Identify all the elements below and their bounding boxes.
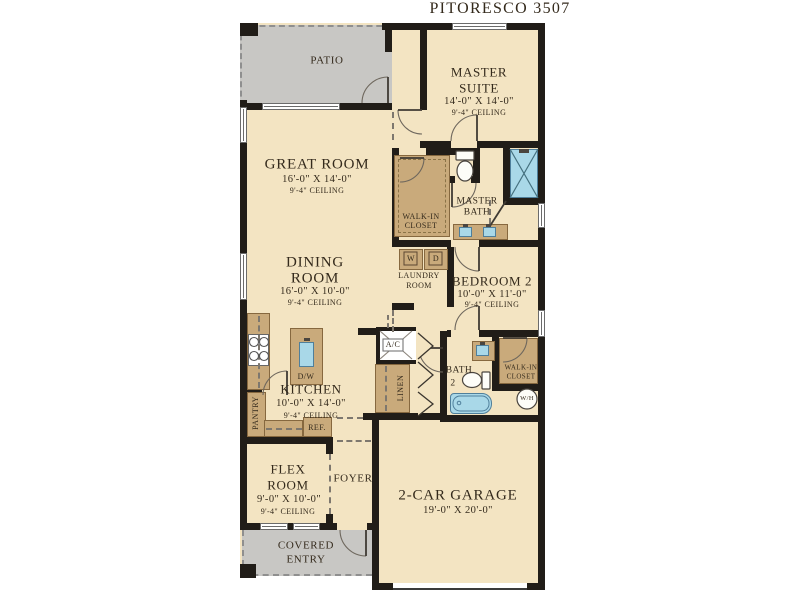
- master-sink-1: [459, 227, 472, 237]
- dashed-opening: [387, 315, 389, 328]
- wall: [420, 23, 427, 110]
- wall: [326, 444, 333, 454]
- dashed-opening: [337, 440, 371, 442]
- label-master-suite-2: SUITE: [459, 82, 499, 95]
- dashed-opening: [266, 428, 302, 430]
- master-sink-2: [483, 227, 496, 237]
- label-garage-dim: 19'-0" X 20'-0": [423, 506, 493, 517]
- bath2-sink: [476, 345, 489, 356]
- label-dining-dim: 16'-0" X 10'-0": [280, 287, 350, 298]
- wall: [450, 176, 455, 183]
- dashed-opening: [392, 112, 394, 140]
- label-foyer: FOYER: [333, 474, 372, 485]
- label-master-bath-2: BATH: [464, 208, 490, 218]
- wall: [503, 148, 510, 205]
- label-dishwasher: D/W: [298, 373, 315, 381]
- window-line: [541, 205, 542, 226]
- label-bedroom2-dim: 10'-0" X 11'-0": [457, 290, 526, 301]
- wall: [240, 437, 333, 444]
- label-master-bath-1: MASTER: [457, 197, 498, 207]
- label-dining-1: DINING: [286, 256, 344, 271]
- label-master-closet-2: CLOSET: [405, 222, 438, 230]
- window-line: [541, 312, 542, 335]
- label-flex-dim: 9'-0" X 10'-0": [257, 495, 321, 506]
- kitchen-sink: [299, 342, 314, 367]
- wall: [479, 330, 538, 337]
- wall: [392, 240, 451, 247]
- label-kitchen: KITCHEN: [280, 383, 341, 396]
- label-laundry-2: ROOM: [406, 282, 432, 290]
- label-flex-2: ROOM: [267, 479, 308, 492]
- wall: [240, 523, 337, 530]
- label-refrigerator: REF.: [308, 424, 326, 432]
- wall: [447, 330, 451, 337]
- wall: [420, 141, 451, 148]
- label-bath2-1: BATH: [446, 366, 472, 376]
- label-closet2-2: CLOSET: [507, 374, 536, 381]
- label-bedroom2-ceil: 9'-4" CEILING: [465, 301, 520, 309]
- label-water-heater: W/H: [520, 396, 534, 403]
- label-ac: A/C: [386, 341, 401, 349]
- wall: [372, 413, 379, 590]
- wall: [471, 176, 480, 183]
- floor-plan: PITORESCO 3507 PATIO MASTER SUITE 14'-0"…: [0, 0, 800, 600]
- garage-door: [393, 588, 527, 590]
- label-kitchen-dim: 10'-0" X 14'-0": [276, 399, 346, 410]
- plan-title: PITORESCO 3507: [429, 1, 570, 17]
- label-pantry: PANTRY: [252, 396, 260, 430]
- wall: [372, 583, 393, 590]
- label-dryer: D: [433, 255, 439, 263]
- dashed-opening: [385, 366, 387, 411]
- wall: [492, 331, 499, 391]
- window-line: [454, 26, 505, 27]
- label-garage: 2-CAR GARAGE: [398, 489, 517, 504]
- window-line: [262, 526, 286, 527]
- window-line: [264, 106, 338, 107]
- label-bedroom2: BEDROOM 2: [452, 275, 532, 288]
- label-washer: W: [407, 255, 415, 263]
- label-linen: LINEN: [397, 375, 405, 402]
- wall: [426, 148, 480, 155]
- label-entry-2: ENTRY: [286, 555, 325, 566]
- wall: [240, 564, 256, 578]
- shower: [510, 149, 538, 198]
- label-master-suite-ceil: 9'-4" CEILING: [452, 109, 507, 117]
- wall: [477, 141, 538, 148]
- label-patio: PATIO: [310, 56, 343, 67]
- window-line: [243, 109, 244, 141]
- wall: [392, 303, 414, 310]
- label-entry-1: COVERED: [278, 541, 334, 552]
- dashed-opening: [392, 310, 394, 332]
- window-line: [295, 526, 318, 527]
- label-flex-ceil: 9'-4" CEILING: [261, 508, 316, 516]
- wall: [440, 331, 447, 422]
- dashed-opening: [337, 417, 363, 419]
- wall: [358, 328, 377, 335]
- wall: [538, 23, 545, 590]
- label-dining-2: ROOM: [291, 272, 339, 287]
- label-master-suite-dim: 14'-0" X 14'-0": [444, 97, 514, 108]
- label-great-room-ceil: 9'-4" CEILING: [290, 187, 345, 195]
- wall: [527, 583, 545, 590]
- label-master-closet-1: WALK-IN: [402, 213, 439, 221]
- label-dining-ceil: 9'-4" CEILING: [288, 299, 343, 307]
- label-great-room: GREAT ROOM: [265, 158, 370, 173]
- bathtub: [450, 393, 492, 414]
- wall: [479, 240, 538, 247]
- exterior-gap: [240, 576, 372, 592]
- label-laundry-1: LAUNDRY: [398, 272, 439, 280]
- wall: [440, 415, 545, 422]
- wall: [240, 23, 258, 36]
- label-closet2-1: WALK-IN: [505, 365, 538, 372]
- wall: [499, 384, 538, 391]
- wall: [240, 100, 247, 530]
- label-flex-1: FLEX: [271, 463, 306, 476]
- dashed-opening: [329, 454, 331, 514]
- label-kitchen-ceil: 9'-4" CEILING: [284, 412, 339, 420]
- wall: [510, 198, 538, 205]
- dashed-opening: [258, 316, 260, 388]
- label-master-suite-1: MASTER: [451, 66, 507, 79]
- label-great-room-dim: 16'-0" X 14'-0": [282, 175, 352, 186]
- label-bath2-2: 2: [450, 379, 455, 389]
- window-line: [243, 255, 244, 298]
- wall: [385, 23, 392, 52]
